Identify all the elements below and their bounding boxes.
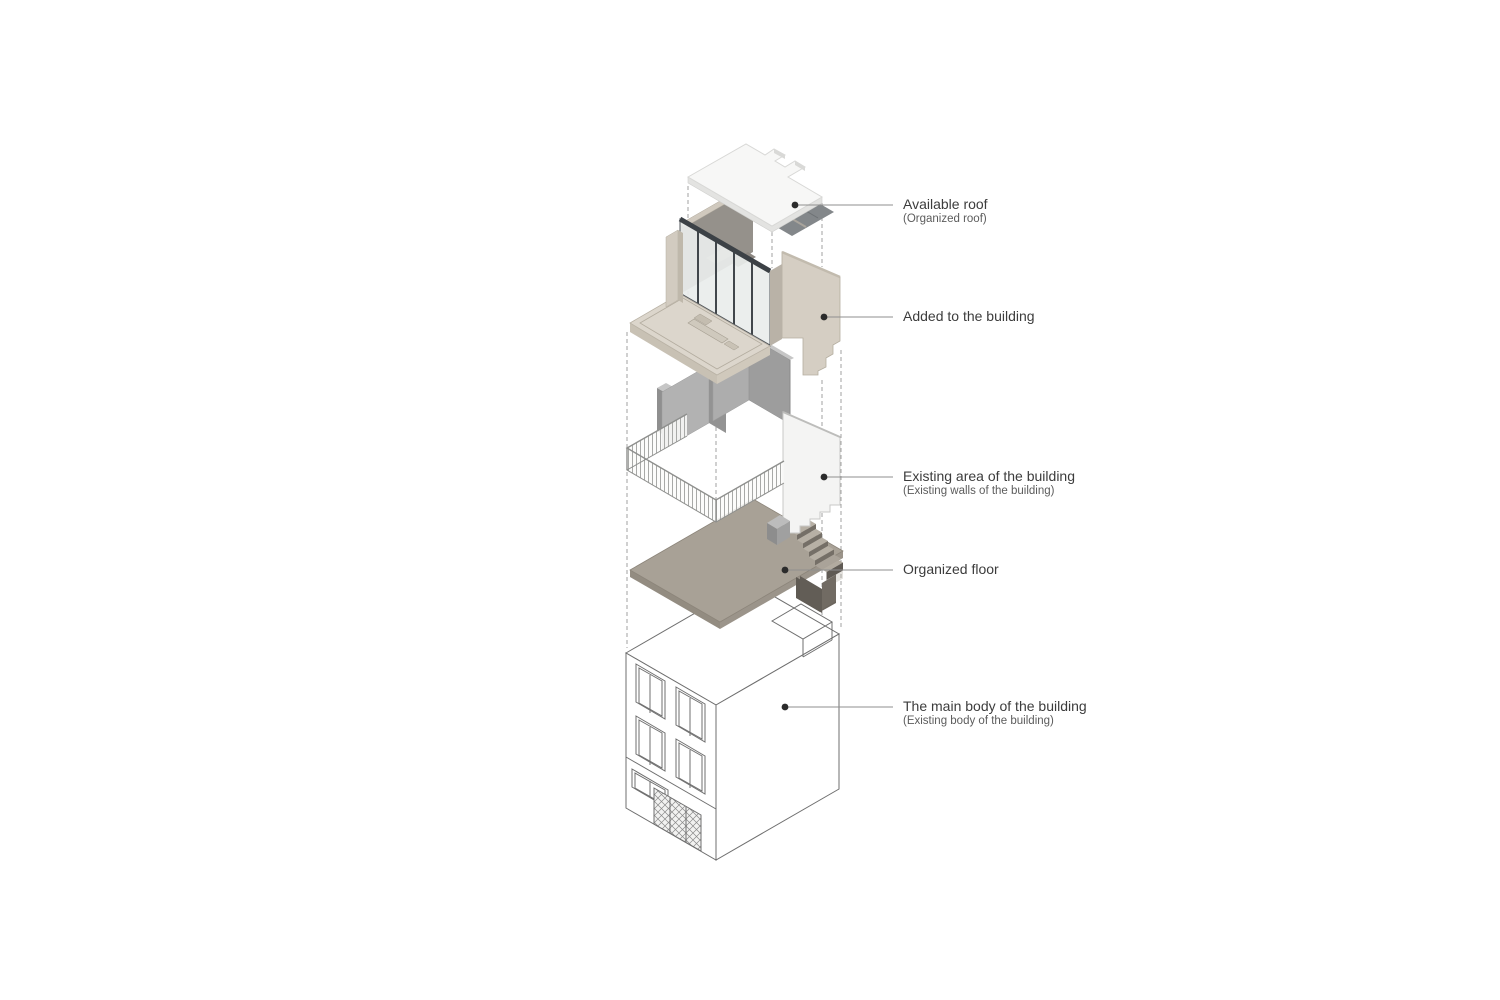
leader-dot xyxy=(821,314,828,321)
label-main-body: The main body of the building xyxy=(903,698,1087,714)
sublabel-main-body: (Existing body of the building) xyxy=(903,715,1054,727)
label-available-roof: Available roof xyxy=(903,196,988,212)
leader-dot xyxy=(792,202,799,209)
leader-dot xyxy=(782,567,789,574)
annotation-existing-area: Existing area of the building (Existing … xyxy=(821,468,1075,497)
sublabel-available-roof: (Organized roof) xyxy=(903,213,987,225)
annotation-added-volume: Added to the building xyxy=(821,308,1035,324)
label-added-volume: Added to the building xyxy=(903,308,1035,324)
label-existing-area: Existing area of the building xyxy=(903,468,1075,484)
layer-building-body xyxy=(626,582,839,860)
white-party-wall xyxy=(783,412,840,533)
sublabel-existing-area: (Existing walls of the building) xyxy=(903,485,1055,497)
leader-dot xyxy=(782,704,789,711)
label-organized-floor: Organized floor xyxy=(903,561,999,577)
leader-dot xyxy=(821,474,828,481)
diagram-canvas: Available roof (Organized roof) Added to… xyxy=(0,0,1500,1000)
exploded-axon-diagram: Available roof (Organized roof) Added to… xyxy=(0,0,1500,1000)
layer-added-volume xyxy=(630,182,840,384)
